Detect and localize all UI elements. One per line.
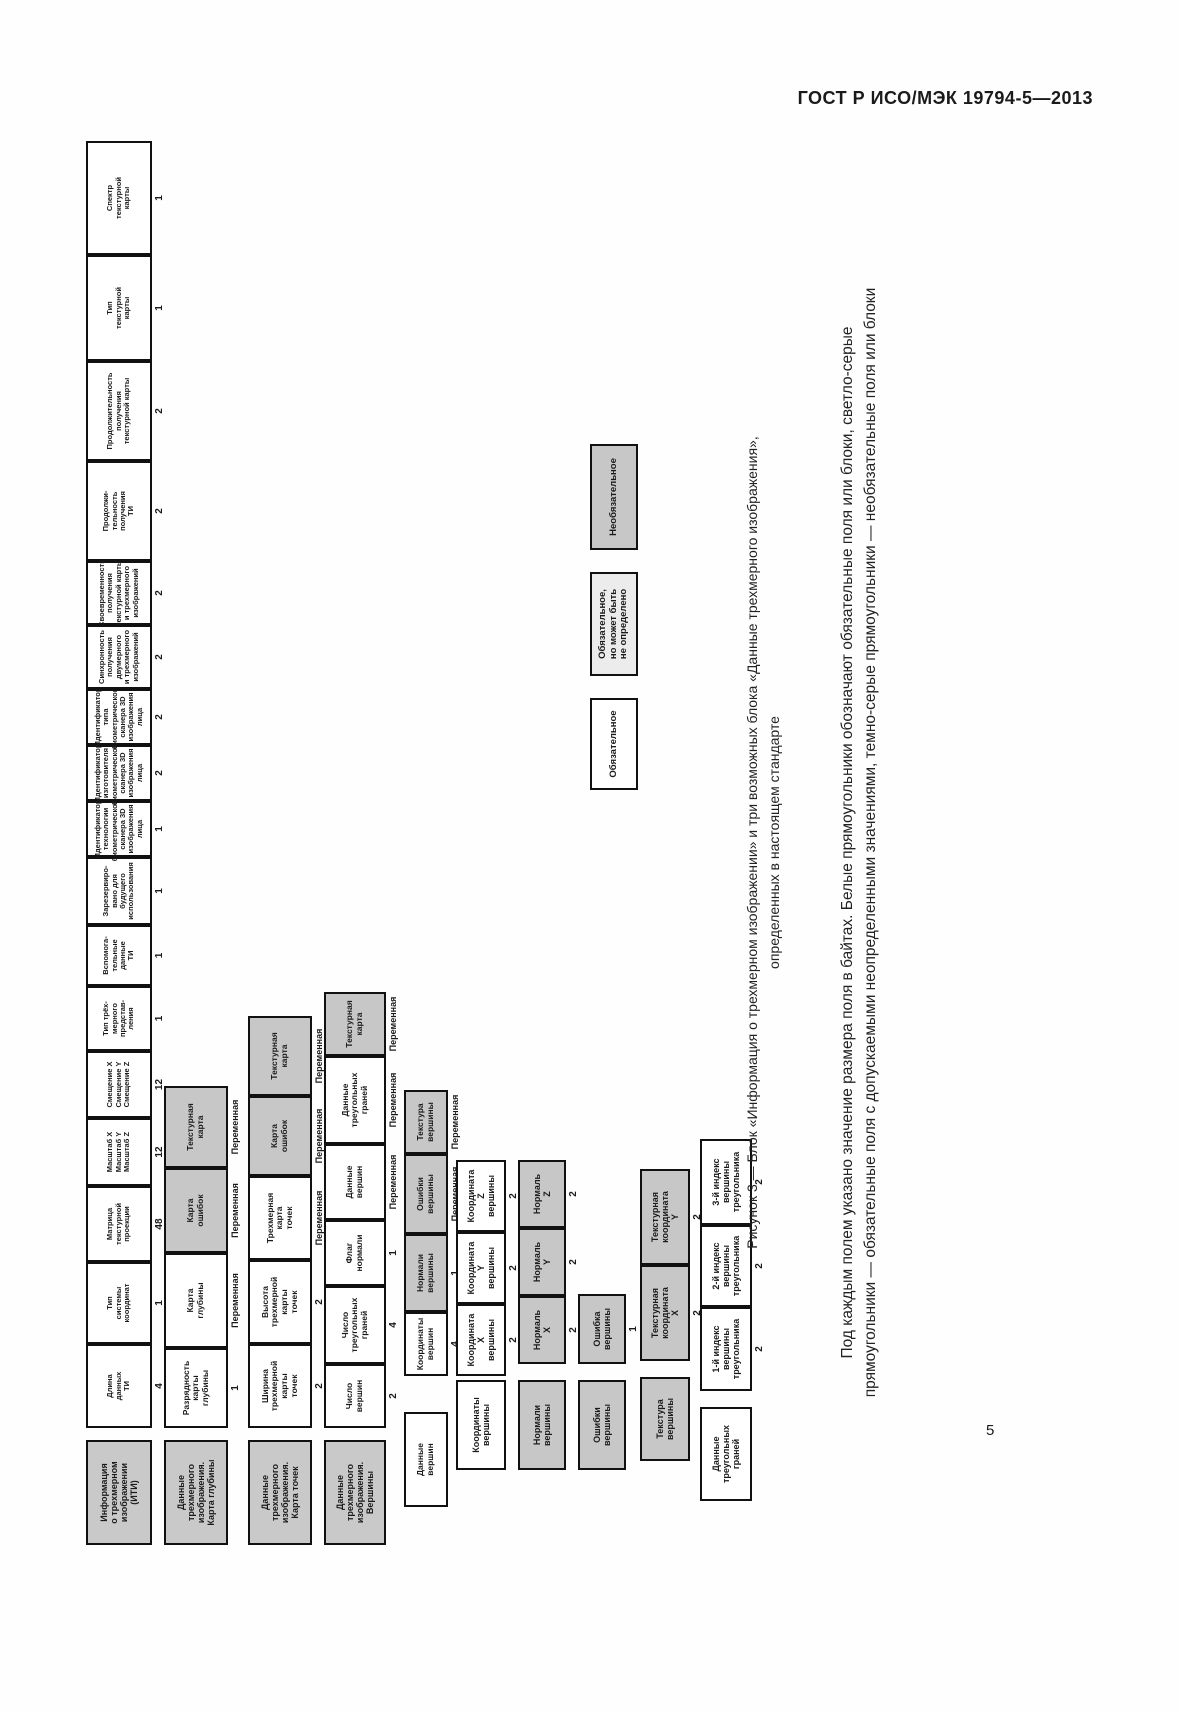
field-box: Нормаль Z xyxy=(518,1160,566,1228)
field-box: Нормаль Y xyxy=(518,1228,566,1296)
field-box-cell: Зарезервиро- вано для будущего использов… xyxy=(86,857,165,925)
legend-box: Обязательное, но может быть не определен… xyxy=(590,572,638,676)
field-box: Флаг нормали xyxy=(324,1220,386,1286)
field-box-cell: Продолжительность получения текстурной к… xyxy=(86,361,165,461)
legend-box: Необязательное xyxy=(590,444,638,550)
field-box-cell: Нормаль X2 xyxy=(518,1296,579,1364)
field-box: Текстурная карта xyxy=(248,1016,312,1096)
field-box-cell: Тип текстурной карты1 xyxy=(86,255,165,361)
field-box: Текстура вершины xyxy=(404,1090,448,1154)
field-box-cell: Спектр текстурной карты1 xyxy=(86,141,165,255)
byte-size-label: 1 xyxy=(154,195,165,201)
field-box-cell: Данные вершинПеременная xyxy=(324,1144,398,1220)
byte-size-label: 2 xyxy=(154,590,165,596)
expansion-root: Координаты вершины xyxy=(456,1380,506,1470)
field-box-cell: Тип трёх- мерного представ- ления1 xyxy=(86,986,165,1051)
byte-size-label: Переменная xyxy=(314,1191,324,1246)
field-box: Спектр текстурной карты xyxy=(86,141,152,255)
byte-size-label: 1 xyxy=(154,953,165,959)
field-box: Текстурная карта xyxy=(164,1086,228,1168)
legend-box-cell: Обязательное, но может быть не определен… xyxy=(590,572,638,676)
field-box-cell: Ошибки вершиныПеременная xyxy=(404,1154,460,1234)
legend-box-cell: Необязательное xyxy=(590,444,638,550)
field-box-cell: Нормаль Z2 xyxy=(518,1160,579,1228)
field-box: Идентификатор типа биометрического скане… xyxy=(86,689,152,745)
field-box-cell: Нормали вершины1 xyxy=(404,1234,461,1312)
expansion-row: Нормали вершиныНормаль X2Нормаль Y2Норма… xyxy=(518,1160,579,1545)
expansion-row: Координаты вершиныКоордината X вершины2К… xyxy=(456,1160,519,1545)
field-box-cell: Длина данных ТИ4 xyxy=(86,1344,165,1428)
field-box: Ширина трехмерной карты точек xyxy=(248,1344,312,1428)
field-box: Ошибки вершины xyxy=(404,1154,448,1234)
figure-caption-line1: Рисунок 3 — Блок «Информация о трехмерно… xyxy=(742,140,764,1545)
field-box-cell: Матрица текстурной проекции48 xyxy=(86,1186,165,1262)
expansion-root: Ошибки вершины xyxy=(578,1380,626,1470)
field-box: Идентификатор изготовителя биометрическо… xyxy=(86,745,152,801)
legend-box: Обязательное xyxy=(590,698,638,790)
field-box: Трехмерная карта точек xyxy=(248,1176,312,1260)
field-box: Текстурная карта xyxy=(324,992,386,1056)
band-header-cell: Данные трехмерного изображения. Карта гл… xyxy=(164,1440,228,1545)
byte-size-label: 1 xyxy=(154,888,165,894)
expansion-root: Данные вершин xyxy=(404,1412,448,1507)
field-box: Масштаб X Масштаб Y Масштаб Z xyxy=(86,1118,152,1186)
field-box-cell: Координата X вершины2 xyxy=(456,1304,519,1376)
field-box-cell: Трехмерная карта точекПеременная xyxy=(248,1176,324,1260)
field-box-cell: Число вершин2 xyxy=(324,1364,399,1428)
band-header-cell: Информация о трехмерном изображении (ИТИ… xyxy=(86,1440,152,1545)
field-box: Текстурная координата Y xyxy=(640,1169,690,1265)
field-box-cell: Своевременность получения текстурной кар… xyxy=(86,561,165,625)
figure-caption-line2: определенных в настоящем стандарте xyxy=(764,140,786,1545)
expansion-row: Текстура вершиныТекстурная координата X2… xyxy=(640,1169,703,1545)
byte-size-label: Переменная xyxy=(314,1109,324,1164)
field-box-cell: Масштаб X Масштаб Y Масштаб Z12 xyxy=(86,1118,165,1186)
field-box: Координата X вершины xyxy=(456,1304,506,1376)
figure-note-line2: прямоугольники — обязательные поля с доп… xyxy=(859,146,882,1539)
byte-size-label: 1 xyxy=(154,305,165,311)
field-box: Карта глубины xyxy=(164,1253,228,1348)
field-box-cell: Тип системы координат1 xyxy=(86,1262,165,1344)
expansion-row: Ошибки вершиныОшибка вершины1 xyxy=(578,1294,639,1545)
band-row: Данные трехмерного изображения. ВершиныЧ… xyxy=(324,992,399,1545)
byte-size-label: 2 xyxy=(568,1191,579,1197)
field-box-cell: Карта ошибокПеременная xyxy=(164,1168,240,1253)
field-box-cell: Флаг нормали1 xyxy=(324,1220,399,1286)
expansion-root: Текстура вершины xyxy=(640,1377,690,1461)
byte-size-label: Переменная xyxy=(388,997,398,1052)
field-box-cell: Карта глубиныПеременная xyxy=(164,1253,240,1348)
band-row: Информация о трехмерном изображении (ИТИ… xyxy=(86,141,165,1545)
field-box: Число треугольных граней xyxy=(324,1286,386,1364)
field-box: Карта ошибок xyxy=(248,1096,312,1176)
field-box: Идентификатор технологии биометрического… xyxy=(86,801,152,857)
byte-size-label: 4 xyxy=(388,1322,399,1328)
field-box: Карта ошибок xyxy=(164,1168,228,1253)
field-box-cell: Текстурная картаПеременная xyxy=(248,1016,324,1096)
byte-size-label: Переменная xyxy=(388,1155,398,1210)
field-box-cell: Нормаль Y2 xyxy=(518,1228,579,1296)
byte-size-label: Переменная xyxy=(388,1073,398,1128)
field-box-cell: Ширина трехмерной карты точек2 xyxy=(248,1344,325,1428)
field-box: Тип системы координат xyxy=(86,1262,152,1344)
field-box: Матрица текстурной проекции xyxy=(86,1186,152,1262)
field-box: Ошибка вершины xyxy=(578,1294,626,1364)
field-box-cell: Разрядность карты глубины1 xyxy=(164,1348,241,1428)
field-box: Зарезервиро- вано для будущего использов… xyxy=(86,857,152,925)
band-header: Данные трехмерного изображения. Карта гл… xyxy=(164,1440,228,1545)
field-box: Длина данных ТИ xyxy=(86,1344,152,1428)
legend-row: ОбязательноеОбязательное, но может быть … xyxy=(590,444,638,790)
expansion-root-cell: Координаты вершины xyxy=(456,1380,506,1470)
figure-note: Под каждым полем указано значение размер… xyxy=(836,146,883,1539)
byte-size-label: 1 xyxy=(154,826,165,832)
field-box-cell: Высота трехмерной карты точек2 xyxy=(248,1260,325,1344)
page-number: 5 xyxy=(986,1422,994,1439)
expansion-root-cell: Данные вершин xyxy=(404,1412,448,1507)
byte-size-label: Переменная xyxy=(230,1100,240,1155)
field-box: Нормаль X xyxy=(518,1296,566,1364)
byte-size-label: Переменная xyxy=(230,1183,240,1238)
figure-caption: Рисунок 3 — Блок «Информация о трехмерно… xyxy=(742,140,785,1545)
field-box: Данные треугольных граней xyxy=(324,1056,386,1144)
field-box: Высота трехмерной карты точек xyxy=(248,1260,312,1344)
band-header-cell: Данные трехмерного изображения. Карта то… xyxy=(248,1440,312,1545)
byte-size-label: 2 xyxy=(568,1259,579,1265)
field-box: Координаты вершин xyxy=(404,1312,448,1376)
byte-size-label: Переменная xyxy=(230,1273,240,1328)
field-box: Своевременность получения текстурной кар… xyxy=(86,561,152,625)
expansion-root-cell: Нормали вершины xyxy=(518,1380,566,1470)
field-box-cell: Число треугольных граней4 xyxy=(324,1286,399,1364)
band-header: Данные трехмерного изображения. Карта то… xyxy=(248,1440,312,1545)
band-header: Информация о трехмерном изображении (ИТИ… xyxy=(86,1440,152,1545)
field-box: Синхронность получения двумерного и трех… xyxy=(86,625,152,689)
byte-size-label: Переменная xyxy=(314,1029,324,1084)
field-box: Смещение X Смещение Y Смещение Z xyxy=(86,1051,152,1118)
field-box-cell: Координата Z вершины2 xyxy=(456,1160,519,1232)
byte-size-label: 1 xyxy=(230,1385,241,1391)
field-box: Разрядность карты глубины xyxy=(164,1348,228,1428)
field-box-cell: Идентификатор изготовителя биометрическо… xyxy=(86,745,165,801)
field-box-cell: Текстура вершиныПеременная xyxy=(404,1090,460,1154)
byte-size-label: 2 xyxy=(154,770,165,776)
byte-size-label: 2 xyxy=(154,508,165,514)
field-box-cell: Вспомога- тельные данные ТИ1 xyxy=(86,925,165,986)
field-box-cell: Данные треугольных гранейПеременная xyxy=(324,1056,398,1144)
field-box-cell: Карта ошибокПеременная xyxy=(248,1096,324,1176)
field-box-cell: Смещение X Смещение Y Смещение Z12 xyxy=(86,1051,165,1118)
band-header: Данные трехмерного изображения. Вершины xyxy=(324,1440,386,1545)
document-page: ГОСТ Р ИСО/МЭК 19794-5—2013 Информация о… xyxy=(0,0,1181,1713)
field-box-cell: Идентификатор технологии биометрического… xyxy=(86,801,165,857)
field-box: Продолжительность получения текстурной к… xyxy=(86,361,152,461)
byte-size-label: 2 xyxy=(388,1393,399,1399)
page-header-title: ГОСТ Р ИСО/МЭК 19794-5—2013 xyxy=(798,88,1093,109)
field-box: Число вершин xyxy=(324,1364,386,1428)
field-box-cell: Текстурная картаПеременная xyxy=(164,1086,240,1168)
figure-note-line1: Под каждым полем указано значение размер… xyxy=(836,146,859,1539)
field-box: Тип трёх- мерного представ- ления xyxy=(86,986,152,1051)
field-box: Продолжи- тельность получения ТИ xyxy=(86,461,152,561)
rotated-figure: Информация о трехмерном изображении (ИТИ… xyxy=(80,140,930,1545)
band-header-cell: Данные трехмерного изображения. Вершины xyxy=(324,1440,386,1545)
field-box-cell: Текстурная картаПеременная xyxy=(324,992,398,1056)
band-row: Данные трехмерного изображения. Карта гл… xyxy=(164,1086,241,1545)
field-box: Координата Z вершины xyxy=(456,1160,506,1232)
field-box: Нормали вершины xyxy=(404,1234,448,1312)
field-box: Данные вершин xyxy=(324,1144,386,1220)
byte-size-label: 1 xyxy=(388,1250,399,1256)
field-box: Координата Y вершины xyxy=(456,1232,506,1304)
expansion-row: Данные вершинКоординаты вершин4Нормали в… xyxy=(404,1090,461,1545)
field-box-cell: Текстурная координата X2 xyxy=(640,1265,703,1361)
field-box: Тип текстурной карты xyxy=(86,255,152,361)
field-box-cell: Ошибка вершины1 xyxy=(578,1294,639,1364)
byte-size-label: 2 xyxy=(154,714,165,720)
field-box-cell: Координата Y вершины2 xyxy=(456,1232,519,1304)
field-box-cell: Координаты вершин4 xyxy=(404,1312,461,1376)
byte-size-label: 2 xyxy=(154,408,165,414)
byte-size-label: 2 xyxy=(154,654,165,660)
band-row: Данные трехмерного изображения. Карта то… xyxy=(248,1016,325,1545)
field-box: Вспомога- тельные данные ТИ xyxy=(86,925,152,986)
field-box-cell: Продолжи- тельность получения ТИ2 xyxy=(86,461,165,561)
byte-size-label: 1 xyxy=(628,1326,639,1332)
expansion-root-cell: Текстура вершины xyxy=(640,1377,690,1461)
expansion-root-cell: Ошибки вершины xyxy=(578,1380,626,1470)
byte-size-label: Переменная xyxy=(450,1095,460,1150)
expansion-root: Нормали вершины xyxy=(518,1380,566,1470)
byte-size-label: 1 xyxy=(154,1016,165,1022)
field-box-cell: Идентификатор типа биометрического скане… xyxy=(86,689,165,745)
field-box-cell: Текстурная координата Y2 xyxy=(640,1169,703,1265)
field-box: Текстурная координата X xyxy=(640,1265,690,1361)
legend-box-cell: Обязательное xyxy=(590,698,638,790)
field-box-cell: Синхронность получения двумерного и трех… xyxy=(86,625,165,689)
